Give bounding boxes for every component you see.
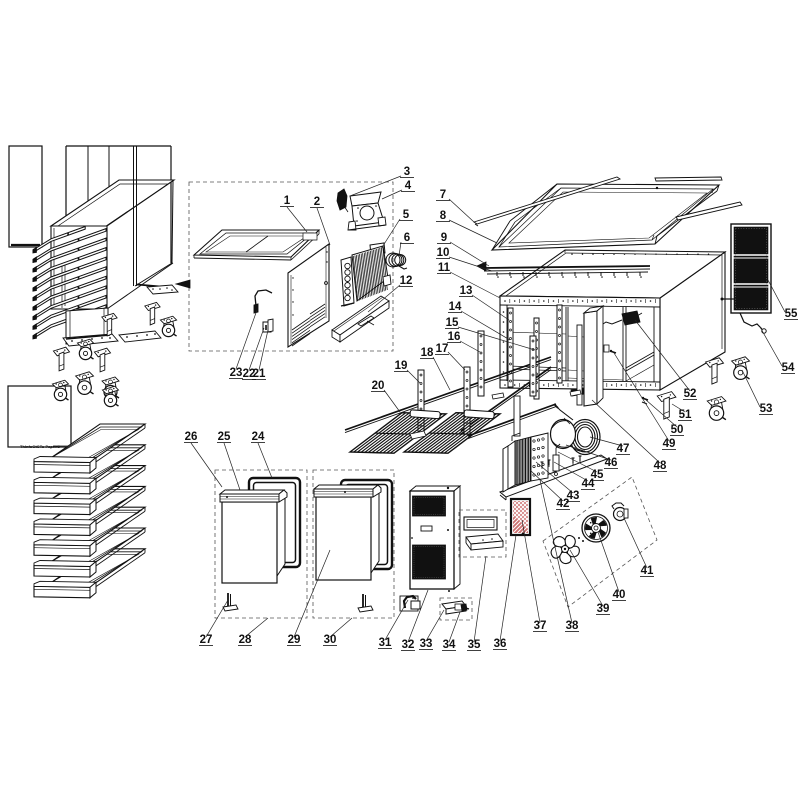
- svg-text:33: 33: [420, 638, 433, 650]
- svg-text:19: 19: [395, 360, 408, 372]
- svg-text:27: 27: [200, 634, 213, 646]
- svg-text:49: 49: [663, 438, 676, 450]
- svg-text:53: 53: [760, 403, 773, 415]
- svg-text:8: 8: [440, 210, 447, 222]
- svg-text:41: 41: [641, 565, 654, 577]
- svg-text:30: 30: [324, 634, 337, 646]
- svg-text:2: 2: [314, 196, 320, 208]
- svg-text:47: 47: [617, 443, 630, 455]
- svg-text:35: 35: [468, 639, 481, 651]
- svg-text:43: 43: [567, 490, 580, 502]
- svg-text:14: 14: [449, 301, 462, 313]
- svg-text:55: 55: [785, 308, 798, 320]
- svg-text:46: 46: [605, 457, 618, 469]
- svg-text:1: 1: [284, 195, 291, 207]
- svg-text:50: 50: [671, 424, 684, 436]
- svg-text:18: 18: [421, 347, 434, 359]
- svg-text:32: 32: [402, 639, 415, 651]
- svg-text:ThInfoGtGTu PaprlrG: ThInfoGtGTu PaprlrG: [20, 444, 60, 449]
- svg-text:36: 36: [494, 638, 507, 650]
- svg-text:45: 45: [591, 469, 604, 481]
- svg-text:20: 20: [372, 380, 385, 392]
- svg-text:6: 6: [404, 232, 410, 244]
- svg-text:39: 39: [597, 603, 610, 615]
- svg-text:3: 3: [404, 166, 410, 178]
- svg-text:25: 25: [218, 431, 231, 443]
- svg-text:31: 31: [379, 637, 392, 649]
- svg-text:51: 51: [679, 409, 692, 421]
- svg-text:29: 29: [288, 634, 301, 646]
- svg-text:40: 40: [613, 589, 626, 601]
- svg-text:13: 13: [460, 285, 473, 297]
- svg-text:38: 38: [566, 620, 579, 632]
- svg-text:7: 7: [440, 189, 446, 201]
- svg-text:15: 15: [446, 317, 459, 329]
- svg-text:17: 17: [436, 343, 449, 355]
- svg-text:12: 12: [400, 275, 413, 287]
- svg-text:16: 16: [448, 331, 461, 343]
- svg-text:37: 37: [534, 620, 547, 632]
- svg-text:22: 22: [243, 368, 256, 380]
- svg-text:23: 23: [230, 367, 243, 379]
- svg-text:54: 54: [782, 362, 795, 374]
- svg-text:52: 52: [684, 388, 697, 400]
- svg-text:48: 48: [654, 460, 667, 472]
- svg-text:24: 24: [252, 431, 265, 443]
- svg-text:26: 26: [185, 431, 198, 443]
- svg-text:34: 34: [443, 639, 456, 651]
- svg-text:10: 10: [437, 247, 450, 259]
- svg-text:4: 4: [405, 180, 412, 192]
- svg-text:9: 9: [441, 232, 447, 244]
- svg-text:28: 28: [239, 634, 252, 646]
- svg-text:5: 5: [403, 209, 410, 221]
- svg-text:11: 11: [438, 262, 451, 274]
